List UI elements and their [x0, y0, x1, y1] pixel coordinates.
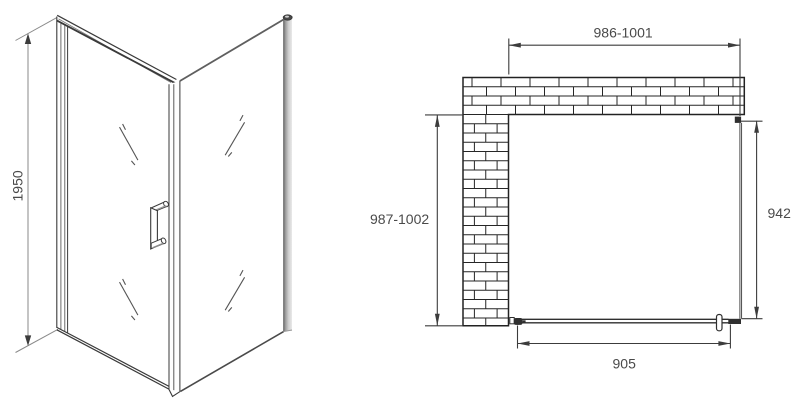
svg-text:986-1001: 986-1001 — [594, 25, 653, 41]
svg-text:905: 905 — [613, 356, 637, 372]
svg-text:942: 942 — [768, 205, 792, 221]
svg-text:1950: 1950 — [10, 170, 26, 201]
svg-text:987-1002: 987-1002 — [370, 211, 429, 227]
